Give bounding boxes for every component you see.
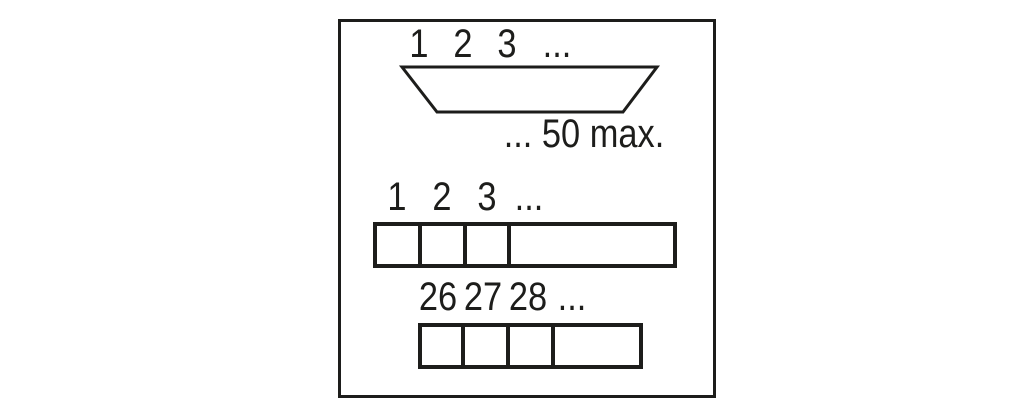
strip1-ellipsis: ...: [515, 177, 544, 217]
strip1-cell-divider: [507, 226, 511, 264]
strip1-label-1: 1: [387, 177, 406, 217]
strip1-label-3: 3: [477, 177, 496, 217]
strip2-cell-divider: [461, 327, 465, 365]
dsub-connector-outline-icon: [395, 58, 665, 120]
strip2-label-27: 27: [464, 277, 502, 317]
pin-assignment-diagram: 1 2 3 ... ... 50 max. 1 2 3 ... 26 27 28…: [0, 0, 1024, 417]
max-pins-label: ... 50 max.: [504, 114, 665, 154]
strip2-ellipsis: ...: [558, 277, 587, 317]
strip2-label-26: 26: [419, 277, 457, 317]
strip2-label-28: 28: [509, 277, 547, 317]
marking-strip-1: [373, 222, 677, 268]
marking-strip-2: [418, 323, 643, 369]
strip2-cell-divider: [551, 327, 555, 365]
strip1-label-2: 2: [432, 177, 451, 217]
strip2-cell-divider: [506, 327, 510, 365]
strip1-cell-divider: [418, 226, 422, 264]
strip1-cell-divider: [463, 226, 467, 264]
